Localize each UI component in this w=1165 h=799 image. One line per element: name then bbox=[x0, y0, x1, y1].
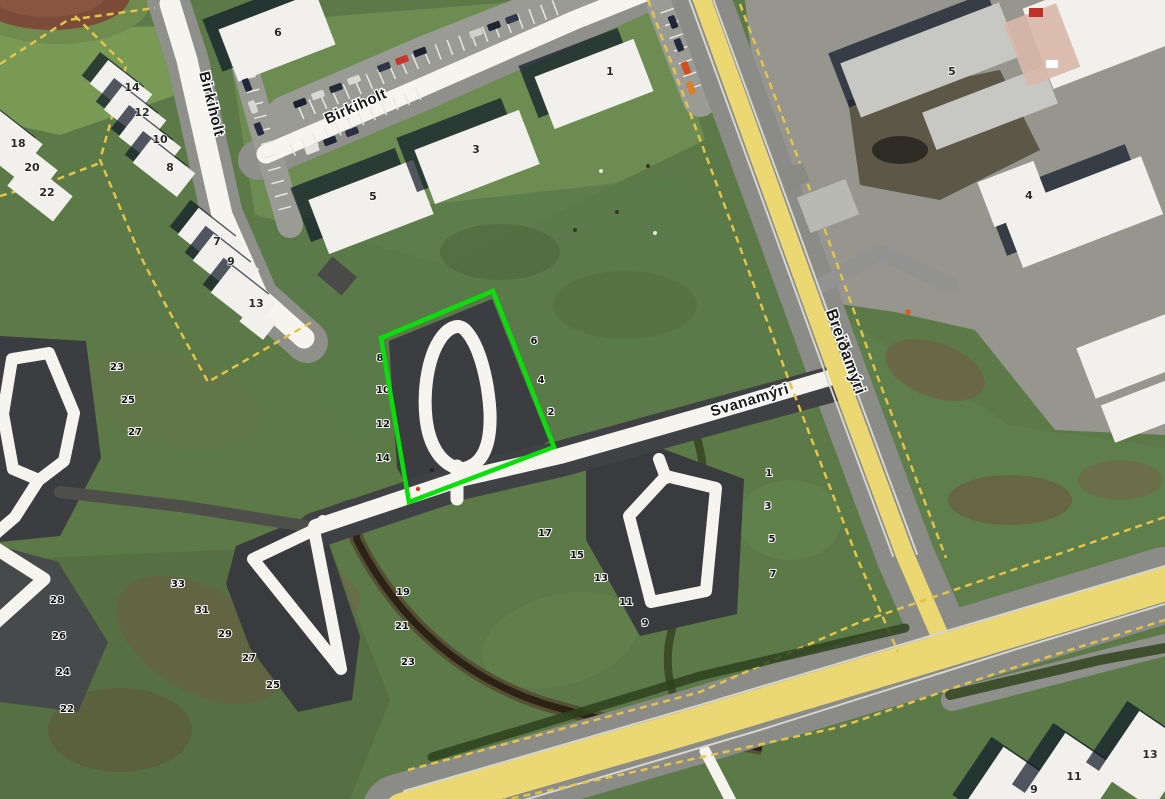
plot-number-label: 4 bbox=[538, 375, 545, 386]
building-number-label: 10 bbox=[152, 133, 168, 146]
building-number-label: 7 bbox=[213, 235, 221, 248]
building-number-label: 8 bbox=[166, 161, 174, 174]
plot-number-label: 7 bbox=[770, 569, 777, 580]
building-number-label: 3 bbox=[472, 143, 480, 156]
building-number-label: 13 bbox=[1142, 748, 1157, 761]
building-number-label: 22 bbox=[39, 186, 54, 199]
sheep-dot bbox=[599, 169, 603, 173]
plot-number-label: 26 bbox=[52, 631, 66, 642]
plot-number-label: 11 bbox=[619, 597, 633, 608]
building-number-label: 13 bbox=[248, 297, 263, 310]
dark-dot bbox=[646, 164, 650, 168]
plot-number-label: 29 bbox=[218, 629, 232, 640]
map-viewport[interactable]: 2325272826242233312927251921231715131198… bbox=[0, 0, 1165, 799]
small-object bbox=[416, 487, 420, 491]
construction-material bbox=[1046, 60, 1058, 68]
plot-number-label: 1 bbox=[766, 468, 773, 479]
building-number-label: 9 bbox=[1030, 783, 1038, 796]
building-number-label: 11 bbox=[1066, 770, 1081, 783]
dark-dot bbox=[615, 210, 619, 214]
plot-number-label: 6 bbox=[531, 336, 538, 347]
field-dark-patch bbox=[553, 271, 697, 339]
field-dark-patch bbox=[440, 224, 560, 280]
plot-number-label: 5 bbox=[769, 534, 776, 545]
building-number-label: 20 bbox=[24, 161, 40, 174]
construction-material bbox=[1029, 8, 1043, 17]
building-number-label: 9 bbox=[227, 255, 235, 268]
plot-number-label: 13 bbox=[594, 573, 608, 584]
building-number-label: 14 bbox=[124, 81, 140, 94]
plot-number-label: 22 bbox=[60, 704, 74, 715]
rubble-dark bbox=[872, 136, 928, 164]
plot-number-label: 28 bbox=[50, 595, 64, 606]
building-number-label: 1 bbox=[606, 65, 614, 78]
plot-number-label: 3 bbox=[765, 501, 772, 512]
building-number-label: 6 bbox=[274, 26, 282, 39]
culdesac-stem bbox=[314, 521, 323, 532]
plot-number-label: 17 bbox=[538, 528, 552, 539]
small-object bbox=[430, 468, 434, 472]
aerial-map[interactable]: 2325272826242233312927251921231715131198… bbox=[0, 0, 1165, 799]
building-number-label: 5 bbox=[369, 190, 377, 203]
brown-patch bbox=[948, 475, 1072, 525]
plot-number-label: 27 bbox=[242, 653, 256, 664]
building-number-label: 5 bbox=[948, 65, 956, 78]
field-light bbox=[738, 480, 842, 560]
culdesac-stem bbox=[659, 459, 666, 478]
construction-vehicle bbox=[905, 309, 911, 315]
plot-number-label: 12 bbox=[376, 419, 390, 430]
plot-number-label: 21 bbox=[395, 621, 409, 632]
plot-number-label: 25 bbox=[121, 395, 135, 406]
plot-number-label: 14 bbox=[376, 453, 390, 464]
plot-number-label: 9 bbox=[642, 618, 649, 629]
dark-dot bbox=[573, 228, 577, 232]
plot-number-label: 25 bbox=[266, 680, 280, 691]
plot-number-label: 2 bbox=[548, 407, 555, 418]
sheep-dot bbox=[653, 231, 657, 235]
plot-number-label: 24 bbox=[56, 667, 70, 678]
plot-number-label: 15 bbox=[570, 550, 584, 561]
plot-number-label: 23 bbox=[110, 362, 124, 373]
plot-number-label: 27 bbox=[128, 427, 142, 438]
plot-number-label: 19 bbox=[396, 587, 410, 598]
brown-patch bbox=[1078, 460, 1162, 500]
building-number-label: 18 bbox=[10, 137, 25, 150]
building-number-label: 12 bbox=[134, 106, 149, 119]
plot-number-label: 31 bbox=[195, 605, 209, 616]
building-number-label: 4 bbox=[1025, 189, 1033, 202]
plot-number-label: 23 bbox=[401, 657, 415, 668]
plot-number-label: 33 bbox=[171, 579, 185, 590]
